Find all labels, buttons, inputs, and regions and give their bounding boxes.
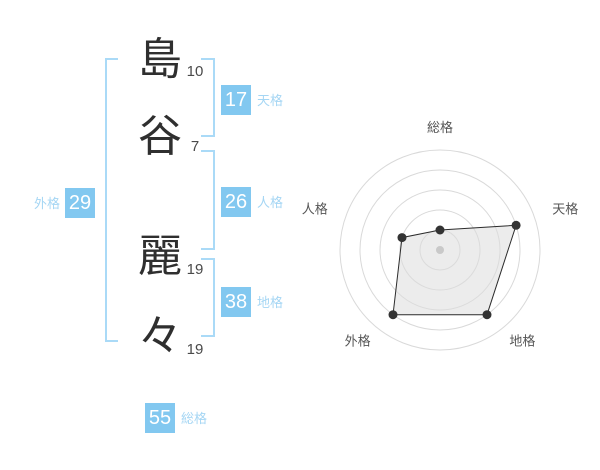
jinkaku-label: 人格 [257, 196, 283, 209]
radar-axis-label: 人格 [302, 202, 328, 218]
tenkaku-label: 天格 [257, 94, 283, 107]
radar-data-point [436, 226, 445, 235]
name-char-1: 島 [130, 38, 190, 82]
radar-data-point [389, 310, 398, 319]
chikaku-label: 地格 [257, 296, 283, 309]
gaikaku-bracket [105, 58, 118, 342]
gaikaku-value-badge: 29 [65, 188, 95, 218]
radar-axis-label: 総格 [427, 120, 453, 136]
radar-data-point [398, 233, 407, 242]
radar-data-point [512, 221, 521, 230]
soukaku-value-badge: 55 [145, 403, 175, 433]
radar-data-polygon [393, 225, 516, 314]
name-char-3: 麗 [130, 235, 190, 279]
radar-axis-label: 地格 [509, 334, 535, 350]
jinkaku-value-badge: 26 [221, 187, 251, 217]
tenkaku-value-badge: 17 [221, 85, 251, 115]
name-char-2: 谷 [130, 115, 190, 159]
radar-chart: 総格天格地格外格人格 [300, 95, 590, 360]
stroke-count-4: 19 [184, 342, 206, 357]
name-char-4: 々 [130, 315, 190, 359]
tenkaku-bracket [201, 58, 215, 137]
name-analysis-panel: 島 谷 麗 々 10 7 19 19 17 天格 26 人格 38 地格 外格 … [0, 0, 600, 470]
radar-axis-label: 外格 [345, 334, 371, 350]
radar-data-point [483, 310, 492, 319]
jinkaku-bracket [201, 150, 215, 250]
radar-center-dot [436, 246, 444, 254]
gaikaku-label: 外格 [28, 197, 60, 210]
soukaku-label: 総格 [181, 412, 207, 425]
radar-axis-label: 天格 [552, 202, 578, 218]
chikaku-value-badge: 38 [221, 287, 251, 317]
chikaku-bracket [201, 258, 215, 337]
